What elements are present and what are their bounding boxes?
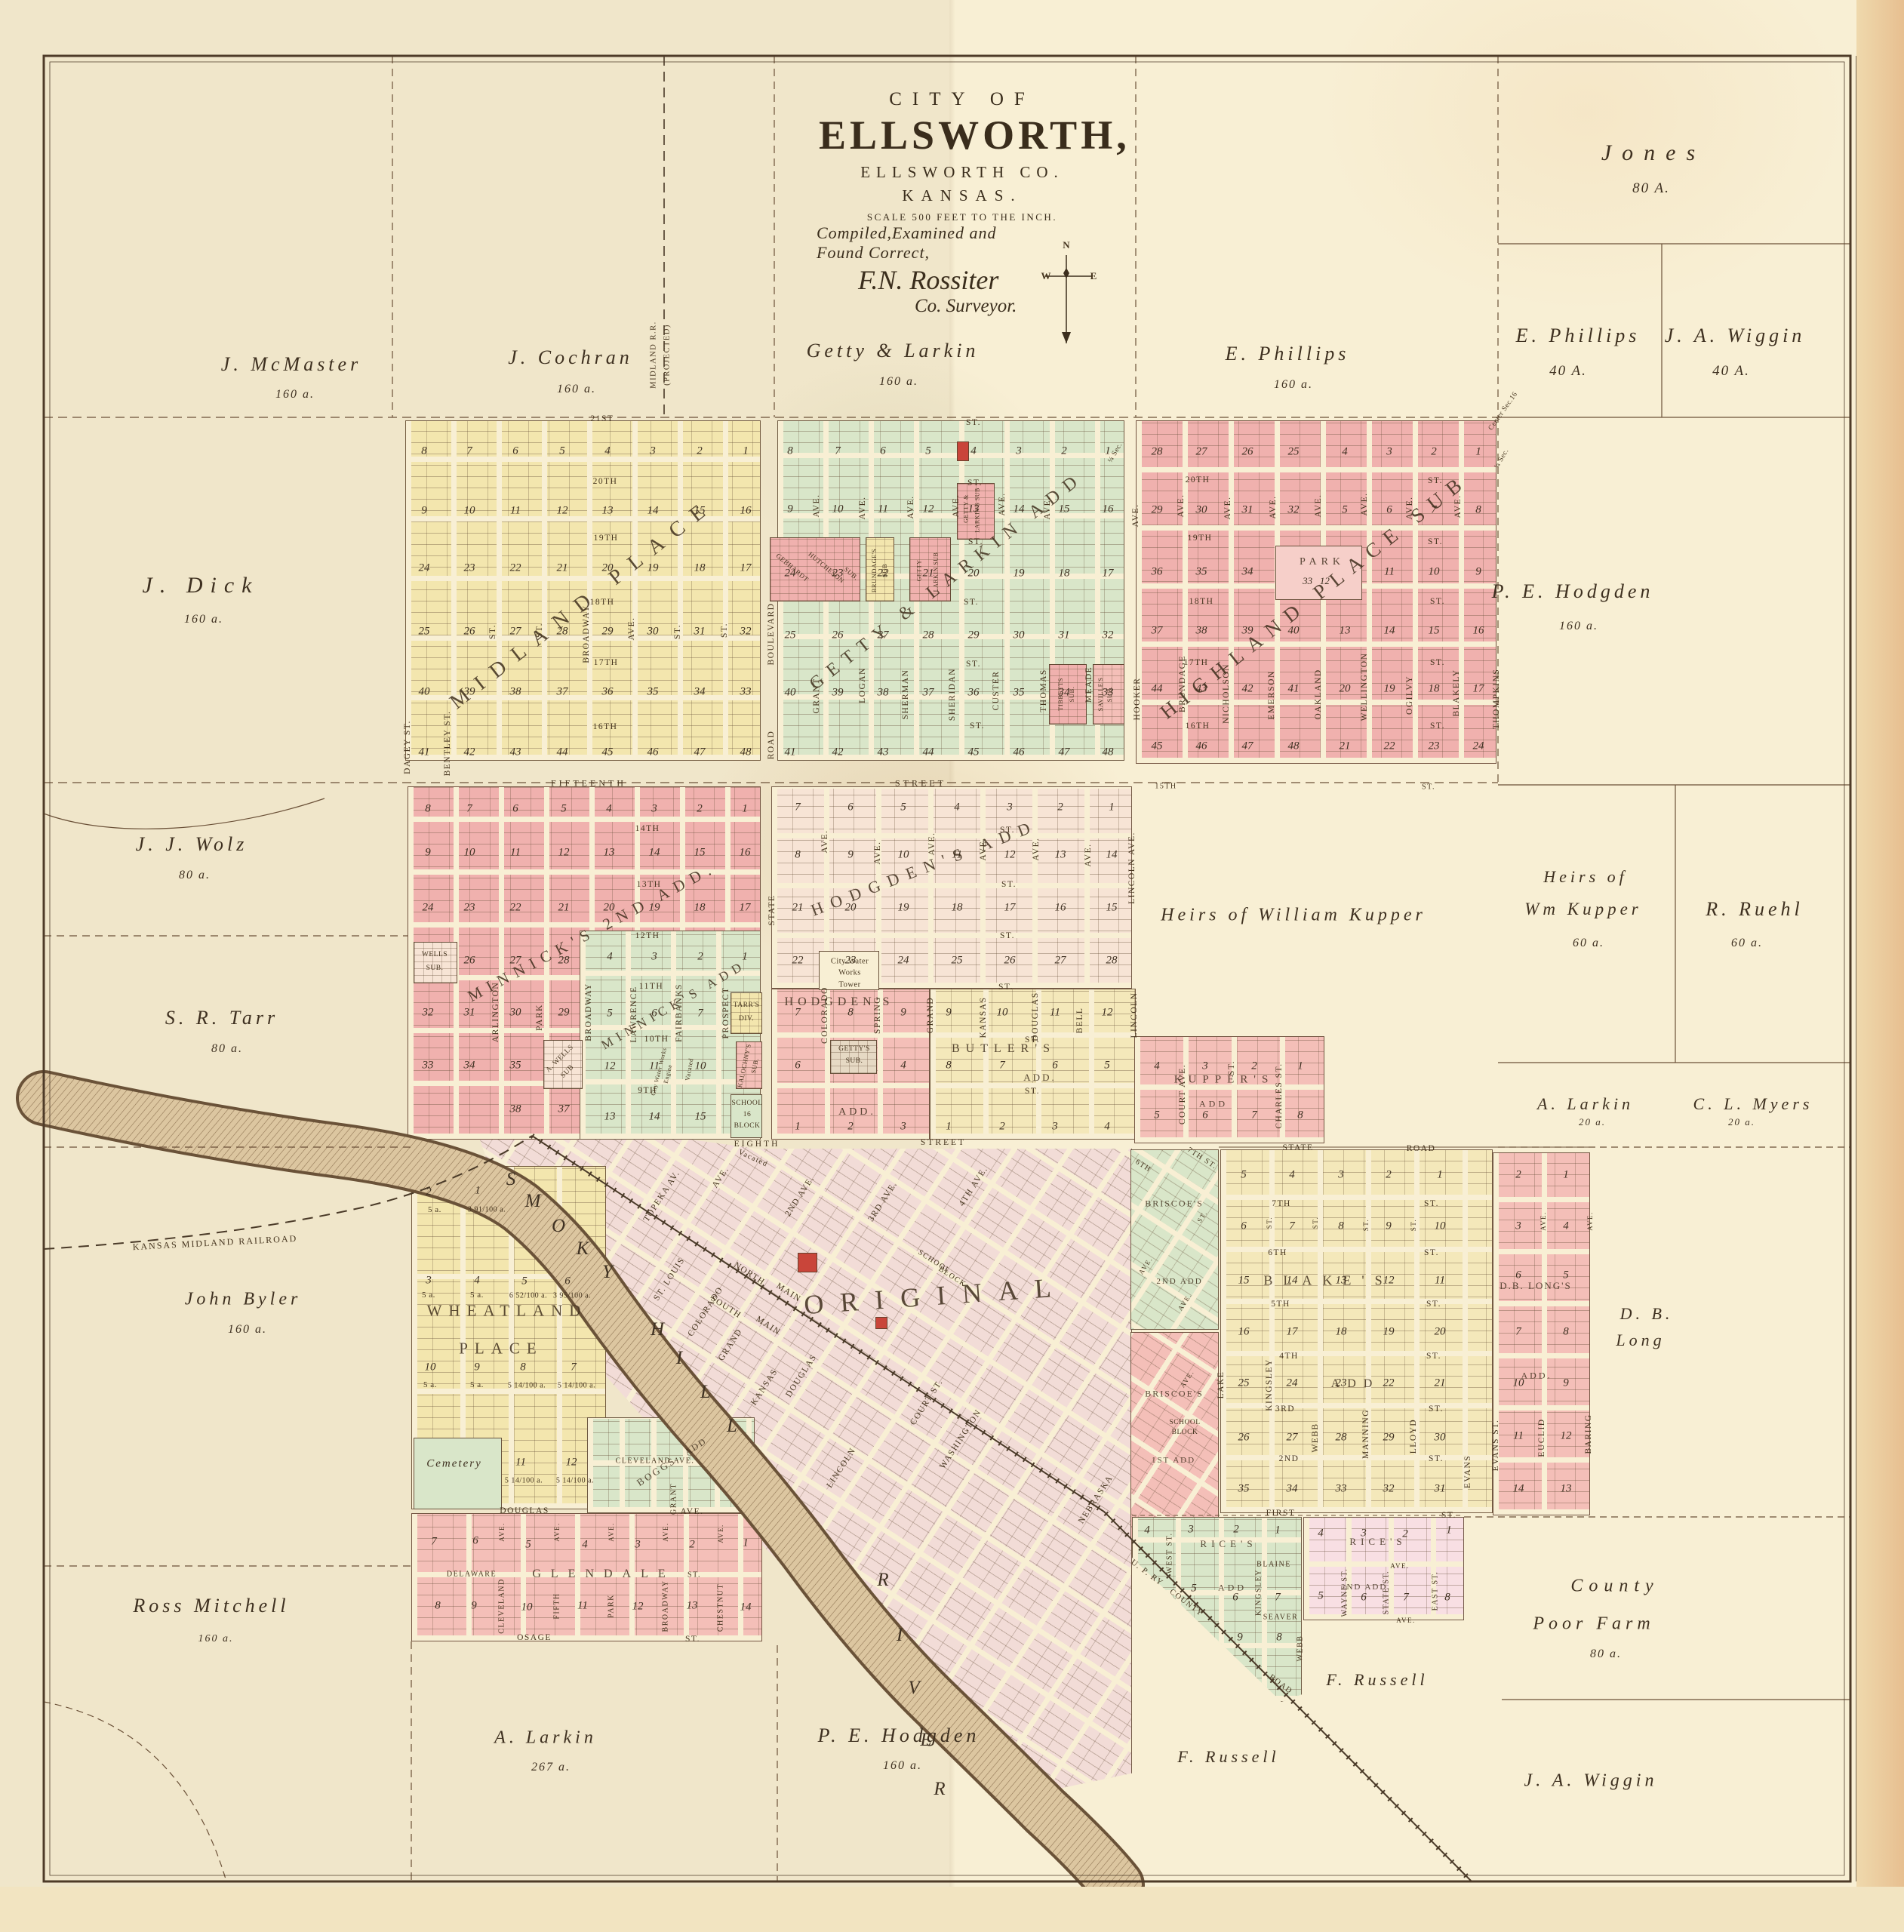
tiny-label: 5 a.	[428, 1205, 441, 1214]
acre-label: 60 a.	[1573, 937, 1604, 950]
bnum-label: 19	[1383, 1326, 1395, 1339]
owner-label: Poor Farm	[1533, 1614, 1654, 1635]
owner-label: R. Ruehl	[1706, 898, 1804, 921]
street-label: ST.	[1227, 1060, 1236, 1075]
bnum-label: 8	[1276, 1632, 1282, 1644]
street-label: MAIN	[774, 1281, 802, 1304]
owner-label: J. Dick	[143, 573, 260, 598]
tiny-label: 5 14/100 a.	[556, 1477, 594, 1485]
tiny-label: ¼ Sec.	[1493, 448, 1511, 470]
owner-label: Wm Kupper	[1524, 900, 1642, 919]
street-label: DOUGLAS	[500, 1506, 549, 1515]
platname-label: ADD	[1199, 1099, 1228, 1110]
street-label: AVE.	[858, 496, 867, 519]
bnum-label: 21	[1435, 1377, 1446, 1390]
riverl-label: E	[920, 1730, 933, 1751]
bnum-label: 35	[647, 686, 659, 699]
tiny-label: SCHOOL	[731, 1100, 762, 1107]
bnum-label: 18	[1336, 1326, 1347, 1339]
riverl-label: R	[877, 1570, 890, 1591]
acre-label: 20 a.	[1579, 1116, 1606, 1128]
street-label: DOUGLAS	[784, 1352, 819, 1398]
street-label: THOMAS	[1039, 669, 1048, 712]
bnum-label: 7	[466, 803, 472, 816]
street-label: 14TH	[635, 824, 660, 833]
title-block: CITY OF ELLSWORTH, ELLSWORTH CO. KANSAS.…	[819, 89, 1106, 223]
acre-label: 160 a.	[228, 1323, 267, 1337]
tiny-label: SUB.	[1106, 687, 1113, 703]
tiny-label: LARKIN SUB	[933, 552, 940, 592]
bnum-label: 38	[510, 686, 521, 699]
tiny-label: LARKIN'S SUB	[974, 488, 981, 533]
street-label: AVE.	[553, 1522, 561, 1542]
bnum-label: 13	[687, 1600, 698, 1613]
street-label: 5TH	[1271, 1300, 1290, 1309]
bnum-label: 23	[464, 902, 475, 915]
bnum-label: 1	[946, 1121, 952, 1134]
street-label: AVE.	[1390, 1562, 1410, 1570]
bnum-label: 21	[792, 902, 804, 915]
bnum-label: 33 12	[1303, 575, 1330, 587]
bnum-label: 27	[510, 626, 521, 638]
owner-label: C. L. Myers	[1693, 1094, 1813, 1114]
acre-label: 80 A.	[1632, 180, 1670, 197]
street-label: GRANT	[670, 1483, 678, 1515]
tiny-label: SUB	[881, 564, 888, 577]
bnum-label: 45	[968, 746, 980, 759]
street-label: CHESTNUT	[717, 1583, 725, 1632]
bnum-label: 40	[785, 687, 796, 700]
bnum-label: 9	[946, 1007, 952, 1020]
street-label: NORTH	[732, 1260, 766, 1287]
street-label: 17TH	[1184, 658, 1209, 667]
bnum-label: 3	[426, 1275, 432, 1287]
bnum-label: 3	[635, 1539, 641, 1552]
bnum-label: 7	[999, 1060, 1005, 1072]
title-state: KANSAS.	[819, 186, 1106, 205]
bnum-label: 46	[1196, 740, 1207, 753]
bnum-label: 34	[464, 1060, 475, 1072]
bnum-label: 11	[510, 847, 521, 860]
street-label: 16TH	[593, 722, 618, 731]
tiny-label: 3 95/100 a.	[553, 1292, 591, 1300]
street-label: MEADE	[1084, 666, 1093, 703]
bnum-label: 15	[694, 847, 706, 860]
street-label: AVE.	[1314, 494, 1323, 517]
street-label: BROADWAY	[582, 605, 591, 663]
bnum-label: 26	[832, 629, 844, 642]
bnum-label: 48	[1103, 746, 1114, 759]
bnum-label: 32	[1383, 1483, 1395, 1496]
platname-label: ORIGINAL	[803, 1271, 1069, 1321]
street-label: AVE.	[1269, 495, 1278, 518]
street-label: WEBB	[1311, 1423, 1320, 1452]
street-label: 16TH	[1186, 721, 1210, 731]
bnum-label: 42	[832, 746, 844, 759]
bnum-label: 35	[1196, 566, 1207, 579]
bnum-label: 16	[1055, 902, 1066, 915]
bnum-label: 32	[423, 1007, 434, 1020]
street-label: ST.	[1000, 826, 1015, 835]
bnum-label: 5	[525, 1539, 531, 1552]
street-label: ST.	[1312, 1217, 1319, 1229]
bnum-label: 2	[697, 445, 703, 458]
street-label: ST.	[1429, 1454, 1444, 1463]
bnum-label: 17	[1287, 1326, 1298, 1339]
street-label: ST.	[966, 418, 981, 427]
bnum-label: 17	[1103, 568, 1114, 580]
bnum-label: 3	[1386, 446, 1392, 459]
bnum-label: 47	[1059, 746, 1070, 759]
street-label: 11TH	[639, 982, 663, 991]
bnum-label: 5	[559, 445, 565, 458]
bnum-label: 14	[1384, 625, 1395, 638]
bnum-label: 8	[421, 445, 427, 458]
street-label: OGILVY	[1405, 675, 1414, 715]
street-label: 7TH ST.	[1186, 1146, 1219, 1171]
bnum-label: 30	[1196, 504, 1207, 517]
bnum-label: 8	[425, 803, 431, 816]
street-label: AVE.	[873, 841, 882, 864]
street-label: WAYNE ST.	[1341, 1568, 1349, 1617]
bnum-label: 8	[1338, 1220, 1344, 1233]
bnum-label: 11	[1050, 1007, 1060, 1020]
riverl-label: Y	[602, 1262, 614, 1283]
bnum-label: 10	[1429, 566, 1440, 579]
bnum-label: 44	[557, 746, 568, 759]
bnum-label: 9	[1563, 1377, 1569, 1390]
street-label: AVE.	[998, 492, 1007, 515]
bnum-label: 30	[1435, 1432, 1446, 1444]
tiny-label: 5 a.	[422, 1291, 435, 1300]
owner-label: J. McMaster	[221, 353, 361, 376]
street-label: ST.	[970, 721, 985, 731]
tiny-label: SAVILLE'S	[1097, 677, 1104, 711]
bnum-label: 10	[464, 847, 475, 860]
bnum-label: 12	[604, 1060, 616, 1073]
bnum-label: 1	[1297, 1060, 1303, 1073]
street-label: 4TH	[1279, 1352, 1299, 1361]
owner-label: F. Russell	[1326, 1670, 1428, 1690]
street-label: NEBRASKA	[1077, 1474, 1115, 1526]
street-label: MAIN	[754, 1315, 782, 1337]
bnum-label: 20	[1340, 683, 1351, 696]
tiny-label: 5 a.	[423, 1380, 437, 1389]
bnum-label: 32	[1103, 629, 1114, 642]
riverl-label: V	[908, 1678, 921, 1699]
bnum-label: 30	[647, 626, 659, 638]
street-label: STREET	[895, 778, 946, 789]
bnum-label: 38	[510, 1103, 521, 1116]
platname-label: ADD.	[838, 1106, 876, 1118]
bnum-label: 23	[1429, 740, 1440, 753]
bnum-label: 33	[423, 1060, 434, 1072]
bnum-label: 8	[1297, 1109, 1303, 1122]
street-label: 6TH	[1268, 1248, 1287, 1257]
owner-label: Long	[1616, 1331, 1665, 1350]
bnum-label: 8	[1563, 1326, 1569, 1339]
bnum-label: 3	[1515, 1220, 1521, 1233]
street-label: 3RD AVE.	[866, 1180, 899, 1223]
bnum-label: 9	[900, 1007, 906, 1020]
street-label: AVE.	[979, 837, 988, 860]
street-label: ST.	[1001, 880, 1017, 889]
street-label: STREET	[921, 1138, 966, 1147]
street-label: HOOKER	[1133, 678, 1142, 721]
street-label: AVE.	[1177, 1292, 1193, 1312]
title-county: ELLSWORTH CO.	[819, 163, 1106, 182]
bnum-label: 10	[898, 849, 909, 862]
bnum-label: 14	[649, 1111, 660, 1124]
bnum-label: 45	[1152, 740, 1163, 753]
bnum-label: 3	[651, 803, 657, 816]
street-label: SHERMAN	[901, 669, 910, 720]
bnum-label: 36	[602, 686, 614, 699]
street-label: ST. LOUIS	[652, 1256, 687, 1303]
owner-label: County	[1570, 1577, 1659, 1597]
bnum-label: 10	[425, 1361, 436, 1374]
bnum-label: 35	[1014, 687, 1025, 700]
street-label: 2ND	[1279, 1454, 1300, 1463]
bnum-label: 4	[1154, 1060, 1160, 1073]
bnum-label: 10	[695, 1060, 706, 1073]
bnum-label: 38	[1196, 625, 1207, 638]
street-label: ST.	[1426, 1352, 1441, 1361]
bnum-label: 2	[1386, 1169, 1392, 1182]
street-label: COURT AVE.	[1178, 1064, 1187, 1124]
bnum-label: 41	[1288, 683, 1300, 696]
platname-label: MIDLAND PLACE	[445, 493, 719, 715]
bnum-label: 3	[1188, 1524, 1194, 1537]
bnum-label: 5	[1241, 1169, 1247, 1182]
bnum-label: 4	[582, 1539, 588, 1552]
street-label: LAWRENCE	[629, 986, 638, 1043]
riverl-label: I	[897, 1625, 904, 1646]
street-label: FIFTEENTH	[551, 778, 626, 789]
bnum-label: 27	[1196, 446, 1207, 459]
tiny-label: SUB.	[749, 1057, 760, 1074]
owner-label: J. A. Wiggin	[1665, 325, 1806, 347]
bnum-label: 31	[464, 1007, 475, 1020]
riverl-label: R	[934, 1779, 946, 1800]
platname-label: KUPPER'S	[1174, 1074, 1275, 1087]
bnum-label: 4	[1104, 1121, 1110, 1134]
owner-label: Jones	[1601, 140, 1706, 166]
street-label: 6TH	[1133, 1158, 1152, 1174]
street-label: CLEVELAND AVE.	[616, 1457, 695, 1466]
bnum-label: 21	[1340, 740, 1351, 753]
street-label: ST.	[673, 624, 682, 639]
bnum-label: 25	[785, 629, 796, 642]
bnum-label: 4	[1289, 1169, 1295, 1182]
street-label: 21ST	[591, 414, 614, 423]
bnum-label: 45	[602, 746, 614, 759]
street-label: ROAD	[767, 731, 776, 760]
bnum-label: 27	[1055, 955, 1066, 968]
bnum-label: 46	[1014, 746, 1025, 759]
street-label: EUCLID	[1537, 1418, 1546, 1457]
bnum-label: 6	[1386, 504, 1392, 517]
bnum-label: 2	[1251, 1060, 1257, 1073]
owner-label: F. Russell	[1177, 1747, 1279, 1767]
street-label: KANSAS MIDLAND RAILROAD	[132, 1233, 297, 1253]
bnum-label: 25	[419, 626, 430, 638]
bnum-label: 5	[561, 803, 567, 816]
street-label: KANSAS	[749, 1367, 780, 1407]
bnum-label: 6	[1241, 1220, 1247, 1233]
street-label: ST.	[964, 598, 979, 607]
platname-label: PARK	[1300, 556, 1345, 568]
platname-label: BRISCOE'S	[1145, 1389, 1204, 1400]
street-label: BLAKELY	[1452, 669, 1461, 716]
bnum-label: 14	[647, 505, 659, 518]
ellsworth-plat-map: 8765432191011121314151624232221201918172…	[0, 0, 1904, 1932]
street-label: KINGSLEY	[1255, 1569, 1263, 1616]
tiny-label: 16	[743, 1111, 752, 1118]
street-label: 4TH AVE.	[958, 1164, 990, 1207]
bnum-label: 5	[521, 1275, 528, 1288]
bnum-label: 15	[1238, 1275, 1250, 1287]
bnum-label: 13	[604, 1111, 616, 1124]
bnum-label: 17	[740, 902, 751, 915]
tiny-label: BRUNDAGE'S	[870, 549, 878, 592]
street-label: ST.	[998, 983, 1014, 992]
bnum-label: 25	[1238, 1377, 1250, 1390]
street-label: ST.	[1428, 476, 1443, 485]
street-label: WELLINGTON	[1360, 653, 1369, 721]
bnum-label: 29	[1152, 504, 1163, 517]
bnum-label: 9	[1475, 566, 1481, 579]
bnum-label: 4	[1342, 446, 1348, 459]
street-label: KANSAS	[979, 996, 988, 1038]
bnum-label: 5	[607, 1008, 613, 1020]
street-label: EVANS ST.	[1491, 1420, 1500, 1472]
owner-label: A. Larkin	[1537, 1094, 1634, 1114]
bnum-label: 12	[558, 847, 570, 860]
street-label: ST.	[1195, 1209, 1208, 1223]
bnum-label: 7	[1275, 1592, 1281, 1604]
street-label: 19TH	[1188, 534, 1213, 543]
street-label: AVE.	[952, 494, 961, 517]
surveyor-signature: F.N. Rossiter	[858, 264, 1066, 296]
bnum-label: 7	[571, 1361, 577, 1374]
bnum-label: 16	[740, 505, 752, 518]
street-label: 20TH	[593, 477, 618, 486]
bnum-label: 6	[1202, 1109, 1208, 1122]
bnum-label: 16	[1473, 625, 1484, 638]
bnum-label: 4	[900, 1060, 906, 1072]
bnum-label: 8	[787, 445, 793, 458]
street-label: ST.	[1426, 1300, 1441, 1309]
bnum-label: 8	[795, 849, 801, 862]
bnum-label: 19	[898, 902, 909, 915]
street-label: ST.	[1441, 1511, 1456, 1520]
bnum-label: 40	[419, 686, 430, 699]
bnum-label: 33	[740, 686, 752, 699]
bnum-label: 34	[694, 686, 706, 699]
bnum-label: 8	[1475, 504, 1481, 517]
bnum-label: 1	[1563, 1169, 1569, 1182]
riverl-label: H	[651, 1319, 666, 1340]
street-label: BENTLEY ST.	[443, 711, 452, 777]
bnum-label: 18	[1059, 568, 1070, 580]
bnum-label: 11	[878, 503, 888, 516]
street-label: EIGHTH	[734, 1140, 780, 1149]
street-label: GRAND	[717, 1327, 744, 1362]
bnum-label: 7	[1403, 1592, 1409, 1604]
bnum-label: 16	[740, 847, 751, 860]
street-label: 15TH	[1155, 783, 1177, 791]
bnum-label: 34	[1242, 566, 1253, 579]
bnum-label: 14	[1513, 1483, 1524, 1496]
platname-label: WHEATLAND	[427, 1302, 588, 1321]
tiny-label: SUB.	[1068, 687, 1075, 703]
street-label: SHERIDAN	[948, 668, 957, 721]
bnum-label: 46	[647, 746, 659, 759]
bnum-label: 27	[1287, 1432, 1298, 1444]
street-label: AVE.	[627, 617, 636, 640]
bnum-label: 37	[923, 687, 934, 700]
bnum-label: 3	[650, 445, 656, 458]
street-label: ST.	[967, 478, 983, 488]
bnum-label: 4	[474, 1275, 480, 1287]
bnum-label: 25	[952, 955, 963, 968]
tiny-label: 5 14/100 a.	[505, 1477, 543, 1485]
bnum-label: 24	[423, 902, 434, 915]
riverl-label: K	[577, 1238, 591, 1260]
tiny-label: GETTY &	[963, 494, 970, 523]
bnum-label: 13	[1340, 625, 1351, 638]
tiny-label: 3 91/100 a.	[468, 1206, 506, 1214]
bnum-label: 22	[510, 902, 521, 915]
street-label: ARLINGTON	[491, 982, 500, 1042]
bnum-label: 9	[847, 849, 854, 862]
acre-label: 80 a.	[1590, 1647, 1622, 1661]
street-label: BLAINE	[1257, 1561, 1291, 1569]
bnum-label: 8	[1444, 1592, 1450, 1604]
bnum-label: 22	[792, 955, 804, 968]
bnum-label: 18	[952, 902, 963, 915]
street-label: ROAD	[1267, 1673, 1293, 1696]
street-label: CUSTER	[992, 670, 1001, 710]
bnum-label: 17	[1473, 683, 1484, 696]
bnum-label: 2	[1515, 1169, 1521, 1182]
bnum-label: 2	[1061, 445, 1067, 458]
platname-label: RICE'S	[1349, 1536, 1406, 1548]
bnum-label: 14	[1106, 849, 1118, 862]
street-label: COUNTY	[1168, 1588, 1205, 1619]
street-label: GRAND	[926, 997, 935, 1033]
street-label: ST.	[1266, 1217, 1273, 1229]
street-label: AVE.	[1177, 494, 1186, 517]
bnum-label: 11	[510, 505, 521, 518]
platname-label: BRISCOE'S	[1145, 1198, 1204, 1210]
street-label: AVE.	[1137, 1256, 1154, 1276]
bnum-label: 4	[954, 801, 960, 814]
bnum-label: 22	[1384, 740, 1395, 753]
title-scale: SCALE 500 FEET TO THE INCH.	[819, 211, 1106, 223]
tiny-label: Engine	[663, 1063, 674, 1084]
street-label: ST.	[1430, 597, 1445, 606]
bnum-label: 28	[923, 629, 934, 642]
bnum-label: 24	[419, 562, 430, 575]
bnum-label: 9	[471, 1600, 477, 1613]
bnum-label: 2	[1233, 1524, 1239, 1537]
street-label: WEBB	[1297, 1635, 1305, 1662]
bnum-label: 28	[1106, 955, 1118, 968]
street-label: KINGSLEY	[1265, 1358, 1274, 1411]
bnum-label: 9	[474, 1361, 480, 1374]
